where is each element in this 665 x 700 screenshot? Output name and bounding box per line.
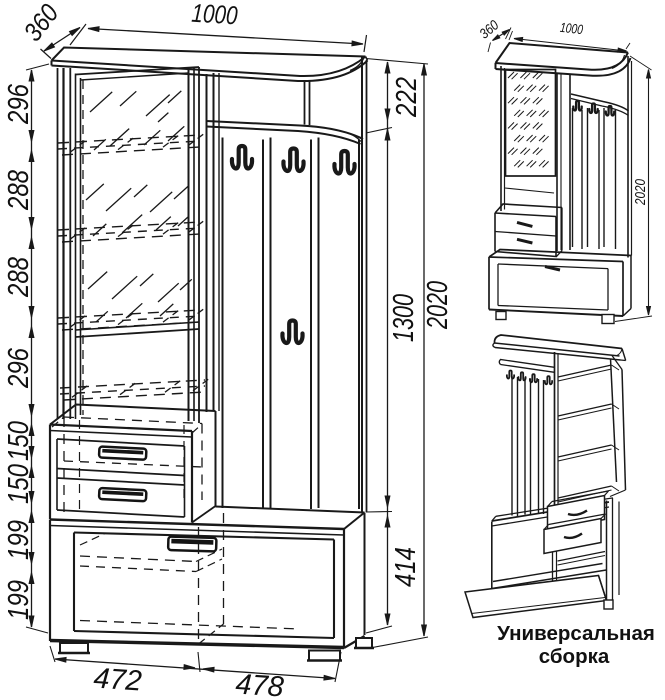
svg-text:199: 199 (3, 520, 35, 560)
svg-text:2020: 2020 (632, 178, 649, 205)
svg-text:150: 150 (3, 421, 35, 461)
svg-text:414: 414 (390, 547, 422, 587)
svg-text:288: 288 (3, 170, 35, 211)
svg-text:296: 296 (3, 347, 35, 389)
svg-text:199: 199 (3, 580, 35, 620)
svg-text:2020: 2020 (422, 281, 454, 330)
svg-text:1000: 1000 (191, 0, 239, 30)
svg-text:296: 296 (3, 83, 35, 125)
svg-text:150: 150 (3, 464, 35, 504)
svg-text:сборка: сборка (539, 645, 610, 668)
svg-text:288: 288 (3, 257, 35, 298)
svg-text:222: 222 (391, 77, 423, 118)
svg-text:478: 478 (235, 668, 285, 700)
svg-text:1300: 1300 (388, 294, 420, 342)
svg-text:1000: 1000 (559, 20, 584, 37)
svg-text:472: 472 (93, 662, 143, 697)
svg-text:Универсальная: Универсальная (497, 622, 655, 645)
